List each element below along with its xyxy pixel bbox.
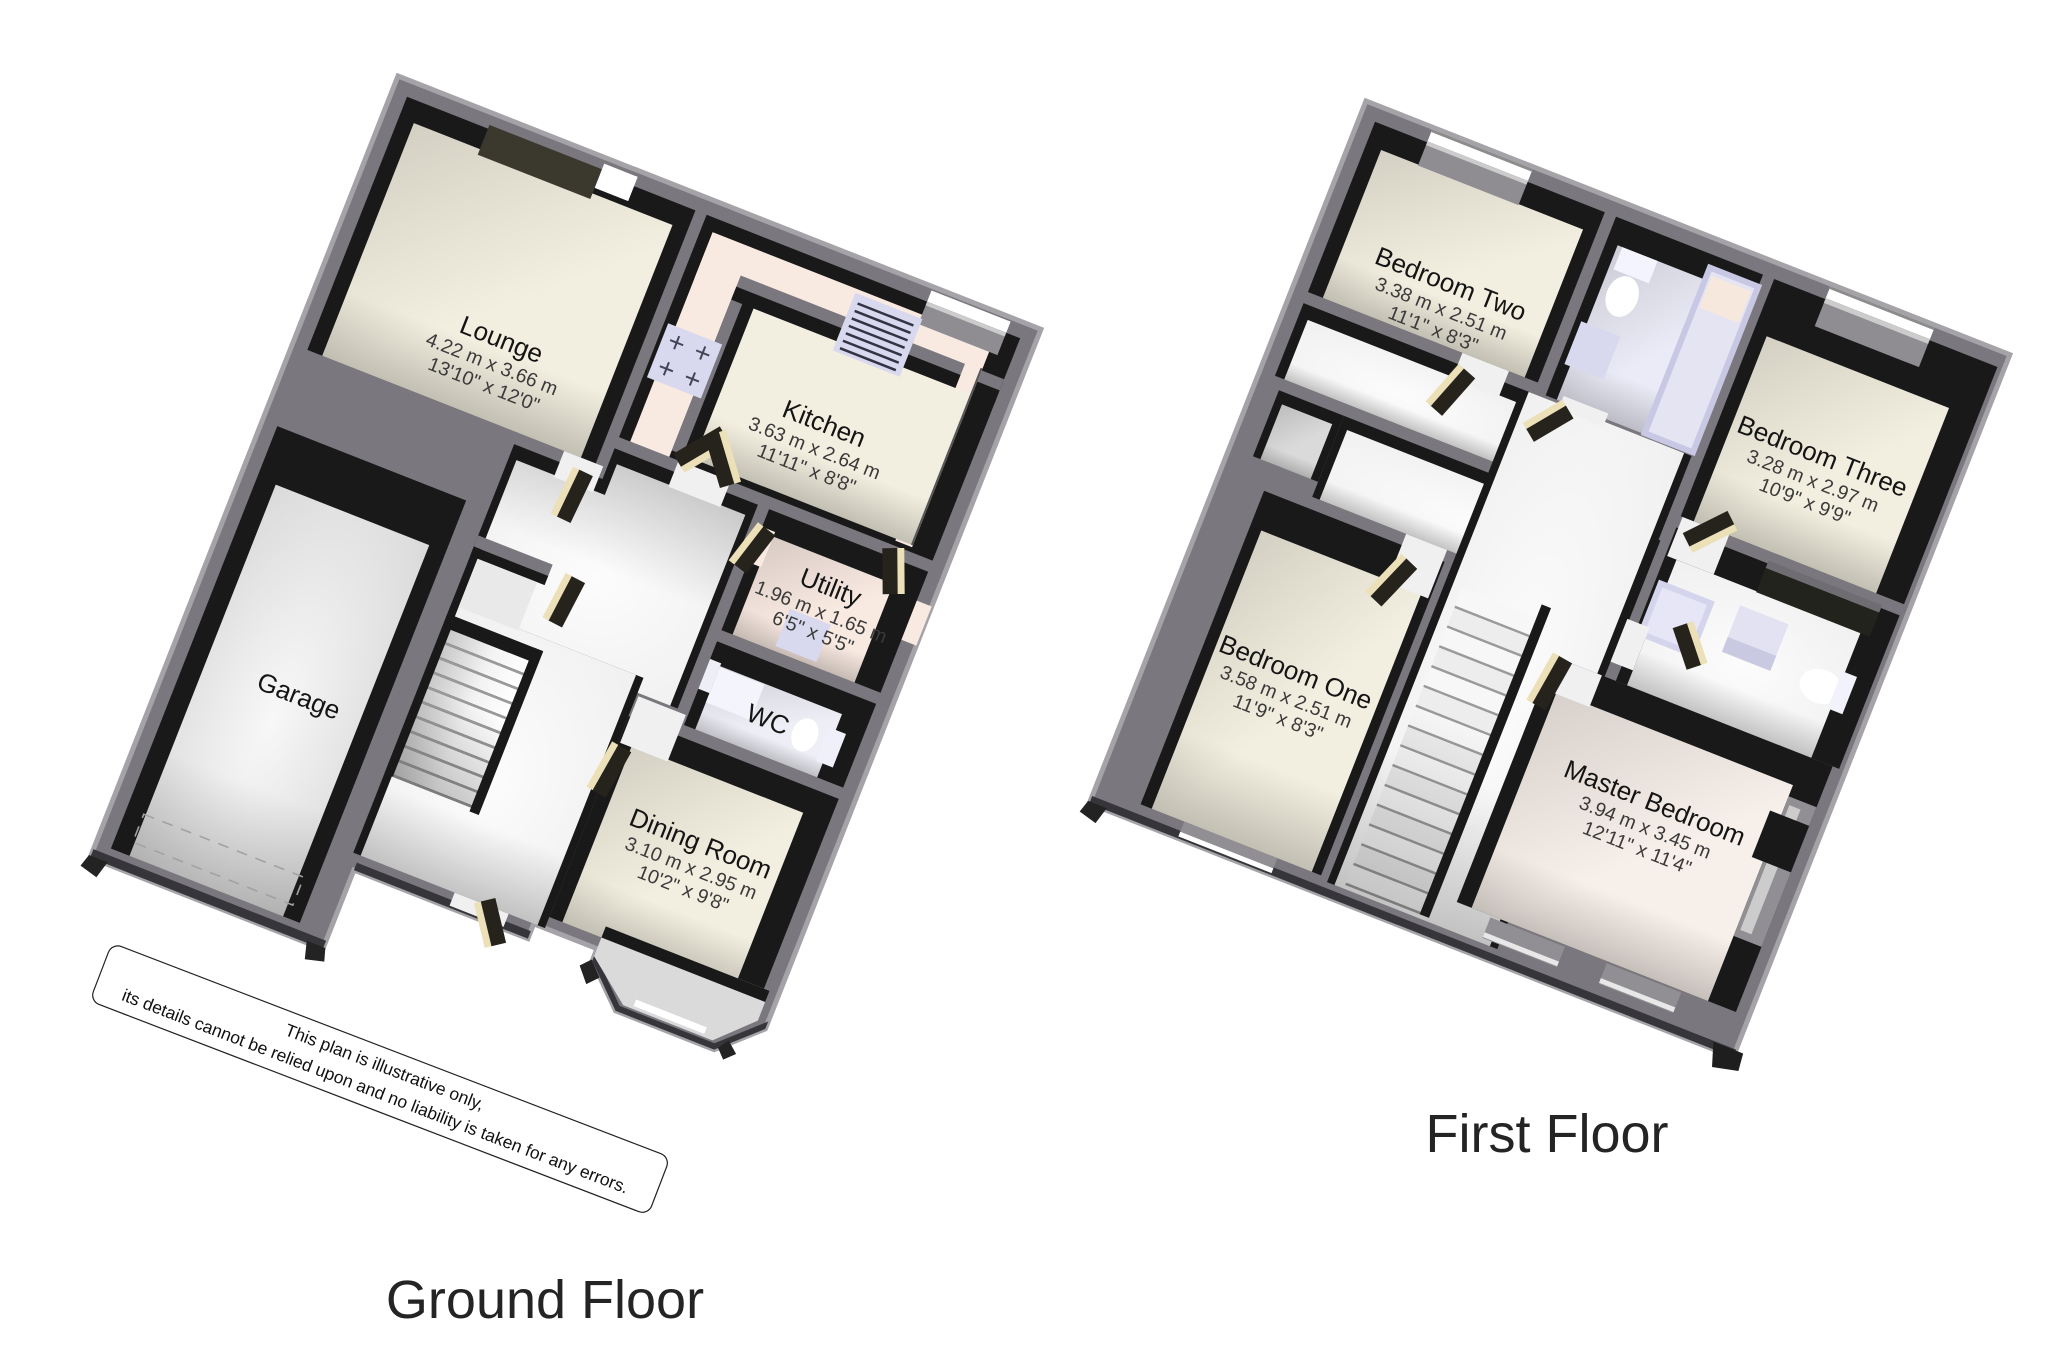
- svg-text:First Floor: First Floor: [1426, 1104, 1669, 1164]
- svg-text:Ground Floor: Ground Floor: [386, 1270, 704, 1330]
